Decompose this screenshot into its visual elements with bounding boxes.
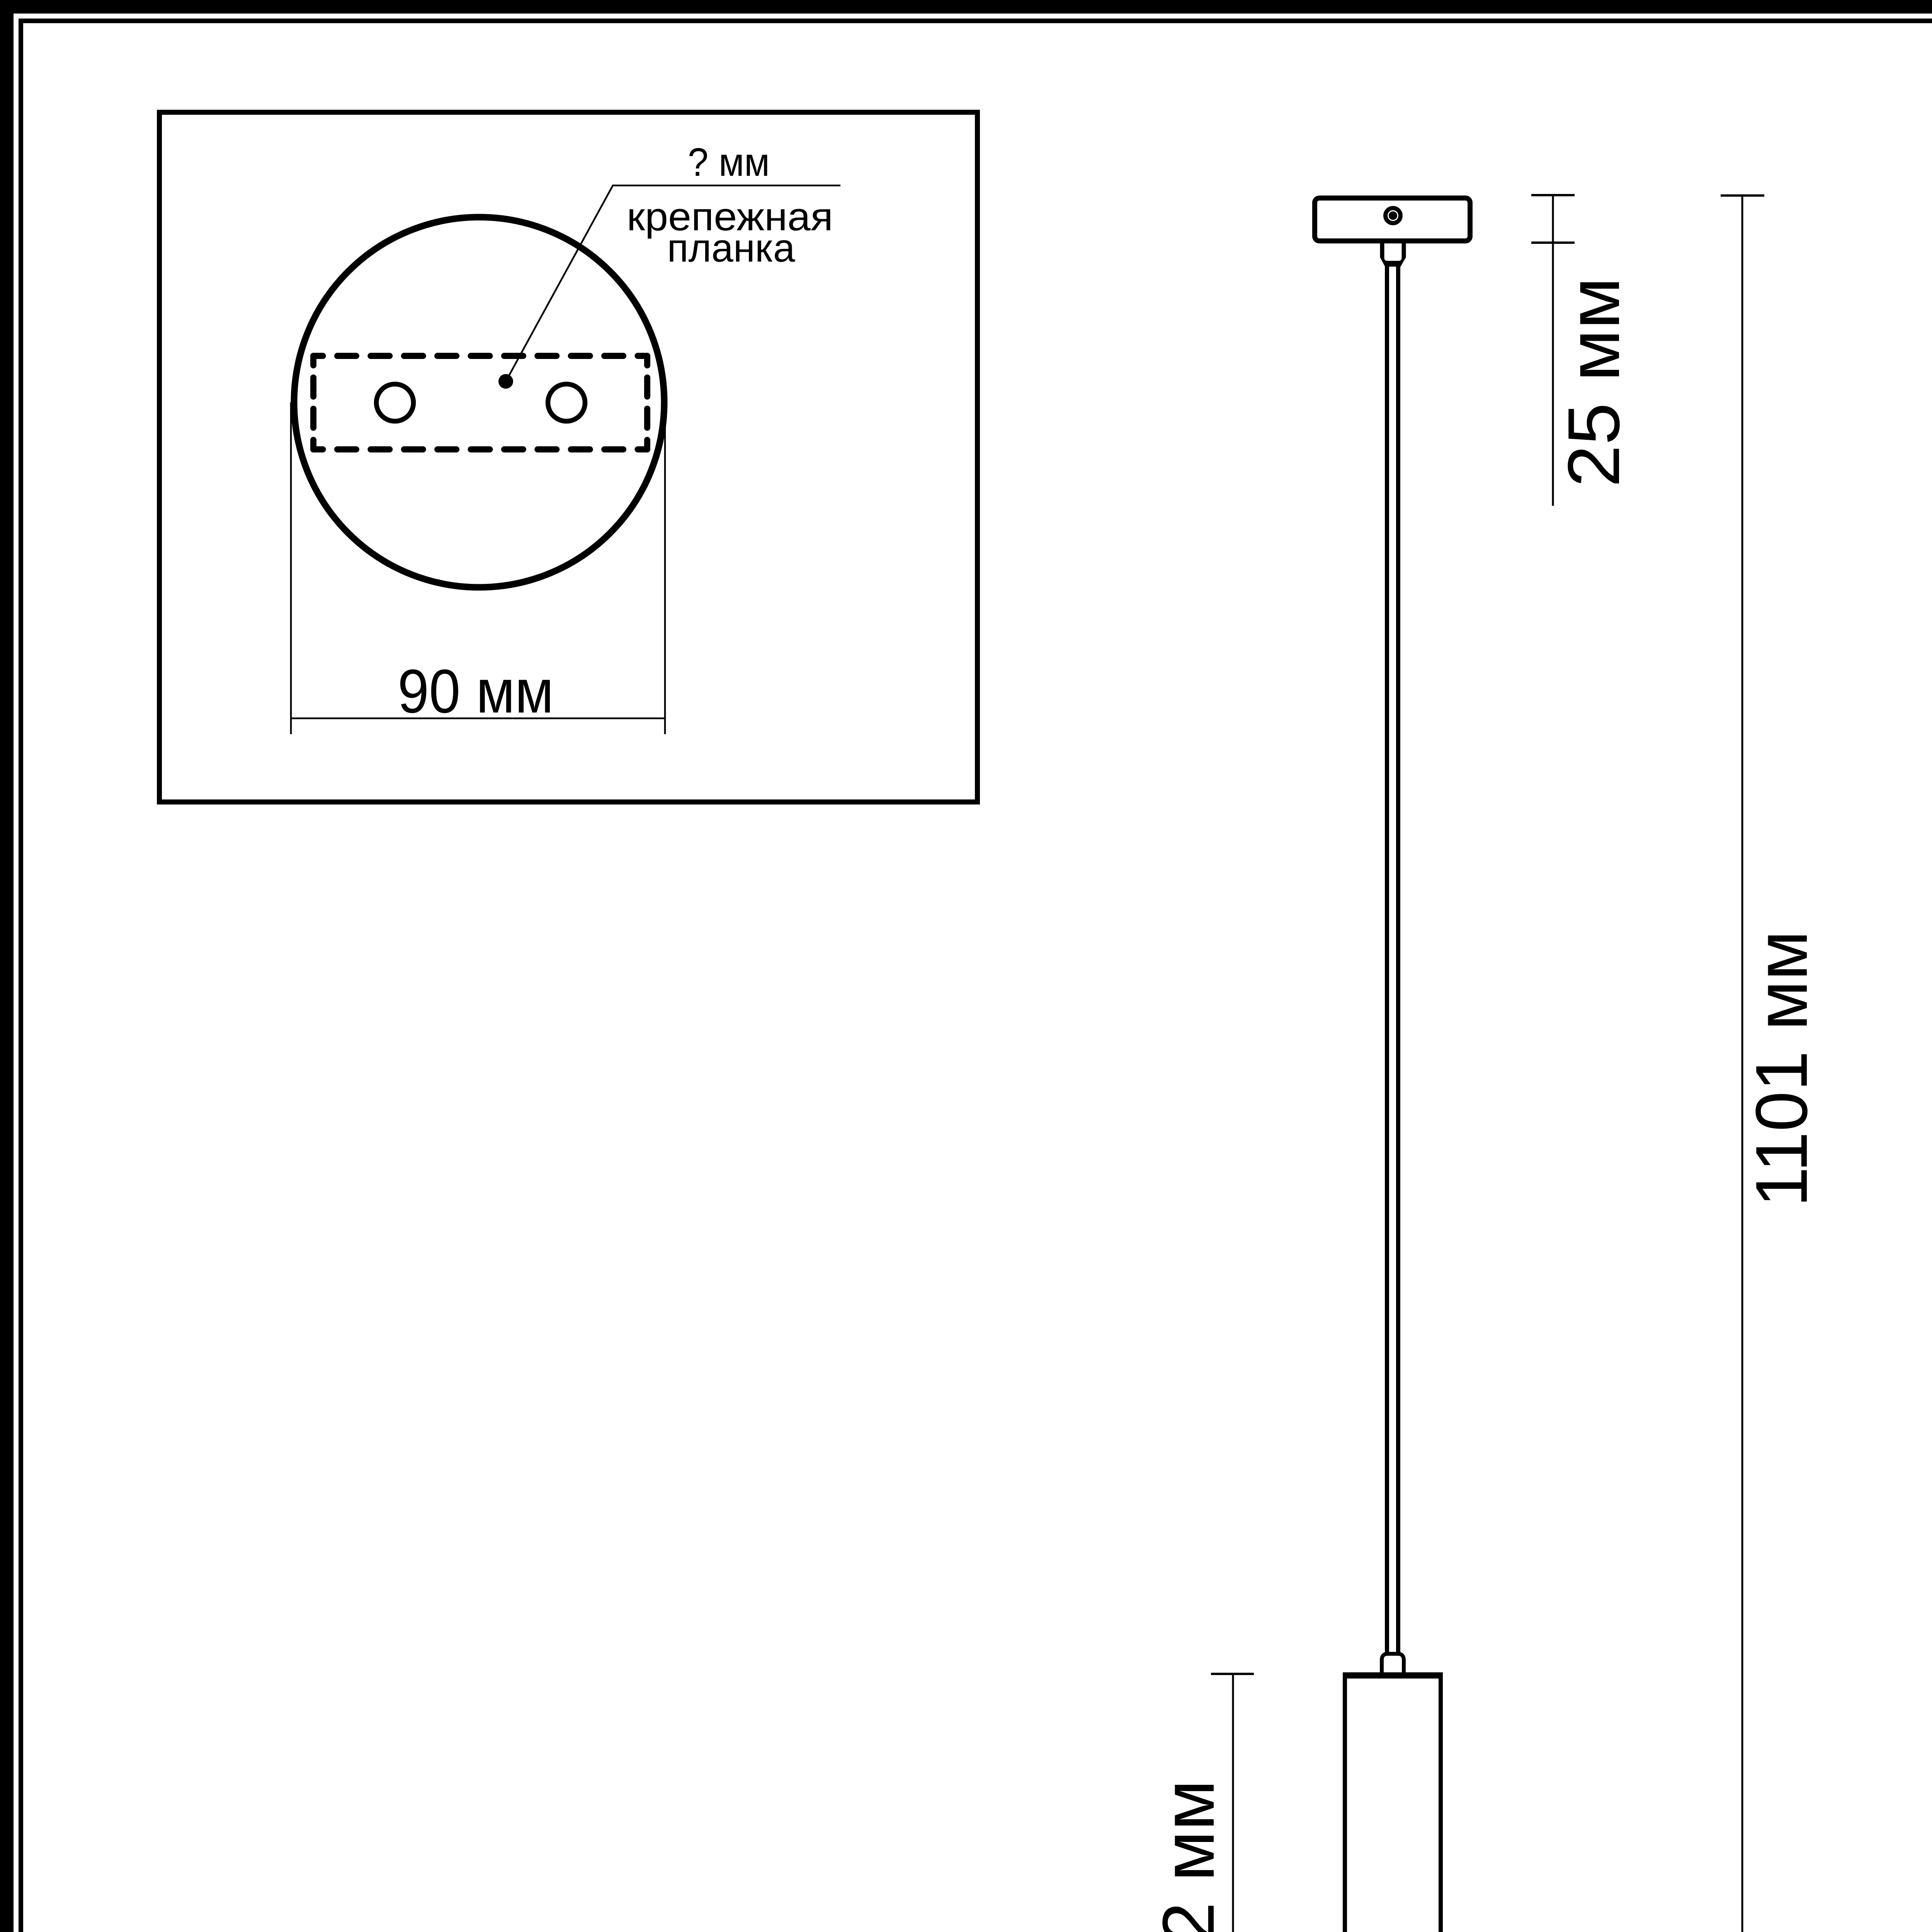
svg-text:1101 мм: 1101 мм: [1741, 930, 1823, 1207]
svg-text:252 мм: 252 мм: [1148, 1780, 1230, 1932]
svg-text:90 мм: 90 мм: [398, 656, 554, 726]
svg-text:? мм: ? мм: [688, 140, 770, 184]
svg-text:планка: планка: [667, 226, 796, 270]
svg-text:25 мм: 25 мм: [1553, 277, 1635, 487]
